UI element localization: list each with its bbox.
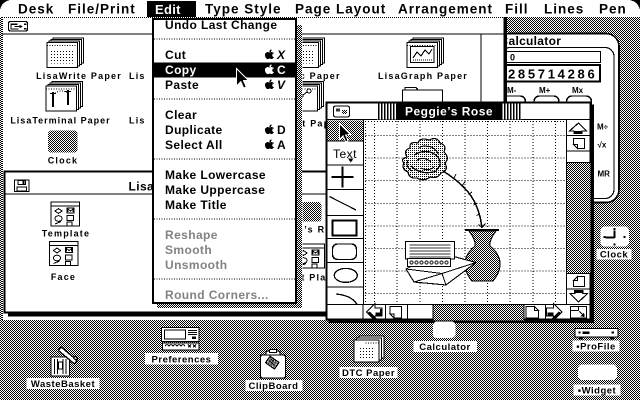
svg-text:D: D: [277, 123, 286, 137]
svg-text:File/Print: File/Print: [68, 2, 136, 17]
svg-text:Clock: Clock: [600, 250, 629, 261]
svg-text:Arrangement: Arrangement: [398, 2, 493, 17]
svg-text:Paste: Paste: [165, 78, 199, 92]
svg-text:Type Style: Type Style: [205, 2, 282, 17]
svg-text:Face: Face: [51, 272, 76, 282]
svg-text:M-: M-: [507, 86, 517, 95]
svg-text:Fill: Fill: [505, 2, 529, 17]
svg-text:Calculator: Calculator: [419, 342, 470, 353]
svg-text:DTC Paper: DTC Paper: [342, 368, 395, 379]
svg-text:Reshape: Reshape: [165, 228, 218, 242]
svg-text:A: A: [277, 138, 286, 152]
svg-text:Page Layout: Page Layout: [295, 2, 386, 17]
svg-text:LisaWrite Paper: LisaWrite Paper: [36, 71, 122, 81]
svg-text:V: V: [277, 78, 286, 92]
svg-text:Duplicate: Duplicate: [165, 123, 223, 137]
svg-text:M÷: M÷: [597, 123, 609, 132]
svg-text:WasteBasket: WasteBasket: [31, 379, 96, 390]
svg-text:Make Lowercase: Make Lowercase: [165, 168, 266, 182]
svg-text:Lines: Lines: [544, 2, 584, 17]
svg-text:Desk: Desk: [18, 2, 54, 17]
svg-text:Template: Template: [42, 229, 90, 239]
svg-text:Calculator: Calculator: [500, 34, 562, 48]
svg-text:MR: MR: [598, 170, 611, 179]
svg-text:Lis: Lis: [129, 71, 146, 81]
svg-text:Make Uppercase: Make Uppercase: [165, 183, 265, 197]
svg-text:Clear: Clear: [165, 108, 197, 122]
svg-text:Lis: Lis: [129, 116, 146, 126]
svg-text:Preferences: Preferences: [152, 355, 212, 366]
svg-text:LisaTerminal Paper: LisaTerminal Paper: [10, 116, 110, 126]
svg-text:▪Widget: ▪Widget: [578, 386, 617, 397]
svg-text:Mx: Mx: [572, 86, 584, 95]
svg-text:Copy: Copy: [165, 63, 197, 77]
svg-text:Smooth: Smooth: [165, 243, 212, 257]
svg-text:Undo Last Change: Undo Last Change: [165, 18, 277, 32]
svg-text:ClipBoard: ClipBoard: [249, 381, 299, 392]
svg-text:Pen: Pen: [599, 2, 627, 17]
svg-text:Round Corners...: Round Corners...: [165, 288, 269, 302]
svg-text:C: C: [277, 63, 286, 77]
svg-text:285714286: 285714286: [508, 67, 597, 82]
svg-text:X: X: [276, 48, 286, 62]
svg-text:Peggie’s Rose: Peggie’s Rose: [405, 105, 493, 119]
svg-text:▪ProFile: ▪ProFile: [576, 342, 616, 353]
svg-text:Text: Text: [333, 147, 357, 161]
svg-text:Cut: Cut: [165, 48, 186, 62]
svg-text:0: 0: [510, 53, 515, 63]
svg-text:Unsmooth: Unsmooth: [165, 258, 228, 272]
svg-text:√x: √x: [598, 141, 607, 150]
svg-text:LisaGraph Paper: LisaGraph Paper: [378, 71, 468, 81]
svg-text:M+: M+: [539, 86, 551, 95]
svg-text:Edit: Edit: [155, 2, 181, 17]
svg-text:Clock: Clock: [48, 156, 79, 166]
svg-text:Make Title: Make Title: [165, 198, 227, 212]
svg-text:Select All: Select All: [165, 138, 223, 152]
